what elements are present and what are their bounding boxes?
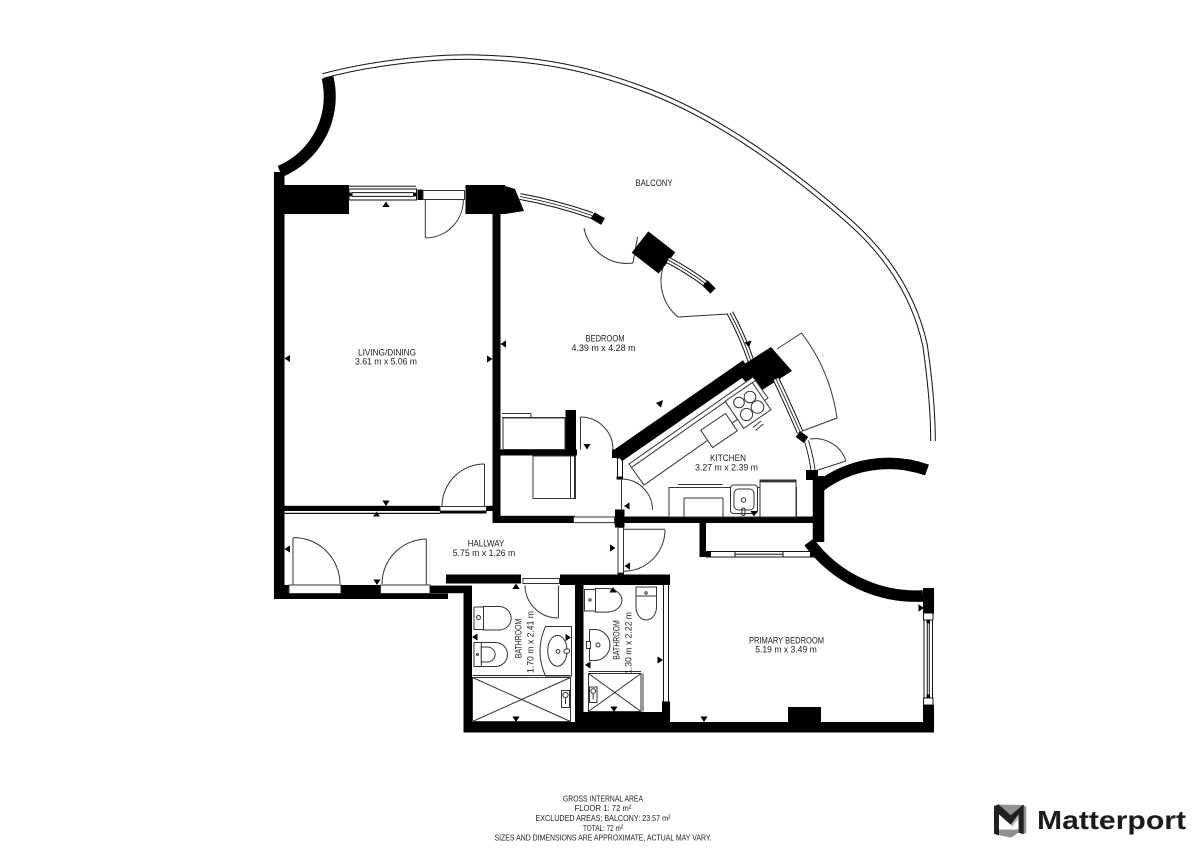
svg-text:KITCHEN: KITCHEN bbox=[710, 453, 746, 463]
svg-text:EXCLUDED AREAS; BALCONY: 23.57: EXCLUDED AREAS; BALCONY: 23.57 m² bbox=[536, 813, 671, 823]
svg-text:HALLWAY: HALLWAY bbox=[468, 539, 505, 549]
svg-text:1.30 m x 2.22 m: 1.30 m x 2.22 m bbox=[624, 612, 634, 674]
svg-text:FLOOR 1: 72 m²: FLOOR 1: 72 m² bbox=[575, 803, 632, 813]
svg-text:BALCONY: BALCONY bbox=[636, 178, 673, 188]
svg-text:5.75 m x 1.26 m: 5.75 m x 1.26 m bbox=[453, 548, 516, 558]
svg-text:BATHROOM: BATHROOM bbox=[612, 620, 622, 660]
svg-text:1.70 m x 2.41 m: 1.70 m x 2.41 m bbox=[526, 611, 536, 673]
svg-text:SIZES AND DIMENSIONS ARE APPRO: SIZES AND DIMENSIONS ARE APPROXIMATE, AC… bbox=[495, 833, 712, 843]
svg-text:BEDROOM: BEDROOM bbox=[586, 334, 625, 344]
svg-text:GROSS INTERNAL AREA: GROSS INTERNAL AREA bbox=[563, 793, 643, 803]
svg-text:BATHROOM: BATHROOM bbox=[514, 619, 524, 659]
svg-text:4.39 m x 4.28 m: 4.39 m x 4.28 m bbox=[572, 343, 636, 353]
svg-text:3.61 m x 5.06 m: 3.61 m x 5.06 m bbox=[355, 356, 417, 366]
svg-text:3.27 m x 2.39 m: 3.27 m x 2.39 m bbox=[695, 462, 758, 472]
svg-text:5.19 m x 3.49 m: 5.19 m x 3.49 m bbox=[755, 644, 817, 654]
svg-text:Matterport: Matterport bbox=[1037, 805, 1186, 835]
